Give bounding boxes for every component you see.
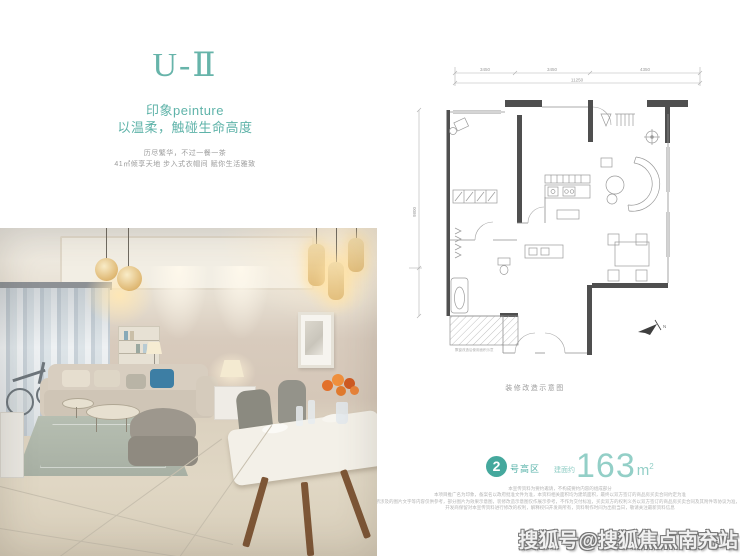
building-number-badge: 2 — [486, 456, 507, 477]
dim-label-left: 9800 — [412, 206, 417, 217]
balcony-note: 飘窗改造后使用面积示意 — [455, 347, 494, 352]
plan-windows — [453, 110, 670, 257]
hero-subtitle-2: 以温柔，触碰生命高度 — [75, 119, 295, 136]
living-room-photo — [0, 228, 377, 556]
hero-tagline-1: 历尽繁华，不过一餐一茶 — [75, 148, 295, 159]
hero-subtitle-1: 印象peinture — [75, 102, 295, 119]
sohu-watermark: 搜狐号@搜狐焦点南充站 — [518, 524, 738, 553]
area-unit-sup: 2 — [649, 462, 653, 471]
area-unit-m: m — [637, 462, 650, 479]
hero-taglines: 历尽繁华，不过一餐一茶 41㎡倾享天地 步入式衣帽间 赋你生活雅致 — [75, 148, 295, 170]
north-arrow-icon: N — [638, 320, 666, 335]
unit-title: U-Ⅱ — [75, 48, 295, 84]
area-unit: m2 — [637, 462, 654, 479]
photo-vignette — [0, 228, 377, 556]
dim-label-1: 3450 — [480, 67, 491, 72]
disclaimer-block: 本宣传资料为要约邀请，不构成要约内容的组成部分 本项目推广名为印象，备案名以政府… — [390, 486, 730, 511]
dim-label-3: 4350 — [640, 67, 651, 72]
unit-info-row: 2 号高区 建面约 163 m2 — [486, 450, 654, 480]
disclaimer-line: 开发商保留对本宣传资料进行修改的权利，解释权归开发商所有，资料制作时间为出街当日… — [445, 505, 675, 511]
area-value: 163 — [576, 453, 636, 480]
building-zone-label: 号高区 — [510, 462, 540, 475]
north-label: N — [663, 324, 666, 329]
hero-tagline-2: 41㎡倾享天地 步入式衣帽间 赋你生活雅致 — [75, 159, 295, 170]
area-prefix-label: 建面约 — [554, 465, 575, 475]
hero-text-block: U-Ⅱ 印象peinture 以温柔，触碰生命高度 历尽繁华，不过一餐一茶 41… — [75, 48, 295, 170]
balcony-hatched — [450, 316, 518, 345]
dim-label-2: 3450 — [547, 67, 558, 72]
dim-label-total: 11250 — [571, 78, 584, 83]
floor-plan: 3450 3450 4350 11250 9800 — [405, 52, 720, 397]
plan-caption: 装修改造示意图 — [440, 383, 630, 393]
